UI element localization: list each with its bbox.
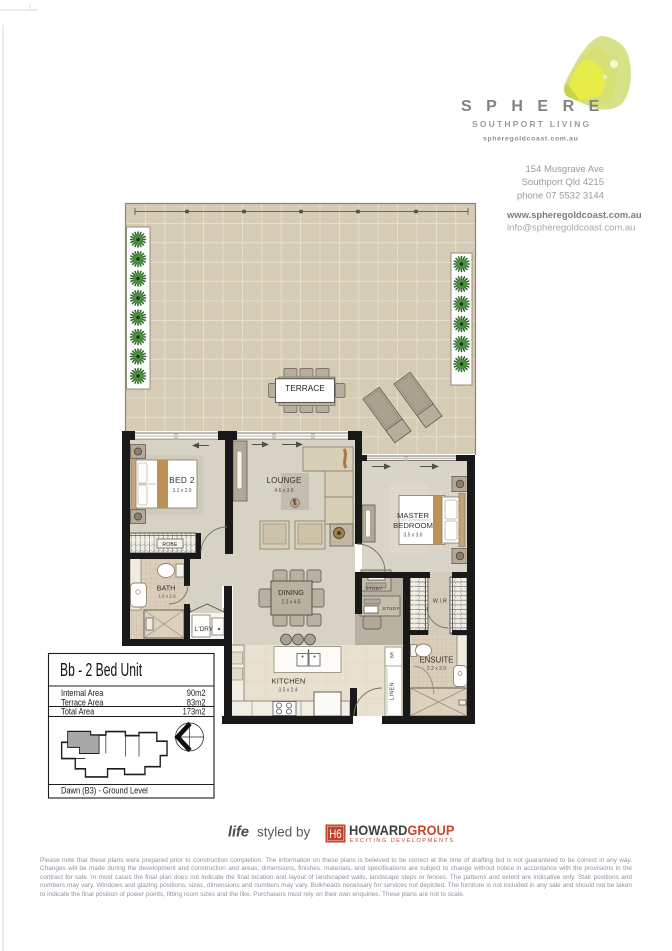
svg-text:ROBE: ROBE: [162, 542, 178, 548]
svg-text:TERRACE: TERRACE: [285, 383, 325, 393]
svg-text:LINEN: LINEN: [390, 682, 396, 700]
svg-text:BED 2: BED 2: [169, 476, 195, 485]
svg-text:W.I.R: W.I.R: [433, 599, 447, 605]
svg-text:2.3 x 4.5: 2.3 x 4.5: [281, 600, 300, 606]
svg-text:Southport Qld 4215: Southport Qld 4215: [522, 177, 604, 188]
svg-text:styled by: styled by: [257, 825, 311, 840]
svg-text:2.2 x 2.9: 2.2 x 2.9: [427, 666, 446, 672]
svg-text:BR: BR: [390, 652, 395, 658]
svg-text:EXCITING DEVELOPMENTS: EXCITING DEVELOPMENTS: [350, 838, 455, 844]
svg-text:MASTER: MASTER: [397, 511, 429, 520]
svg-text:life: life: [228, 825, 249, 841]
svg-text:SPHERE: SPHERE: [461, 98, 614, 115]
svg-text:STUDY: STUDY: [365, 586, 383, 592]
svg-text:BATH: BATH: [157, 584, 176, 593]
svg-text:ENSUITE: ENSUITE: [420, 656, 454, 665]
svg-text:HOWARDGROUP: HOWARDGROUP: [349, 823, 455, 838]
svg-text:STUDY: STUDY: [382, 606, 400, 612]
svg-text:www.spheregoldcoast.com.au: www.spheregoldcoast.com.au: [506, 209, 642, 220]
svg-text:Total Area: Total Area: [61, 706, 94, 717]
svg-text:154 Musgrave Ave: 154 Musgrave Ave: [525, 164, 604, 175]
svg-text:H6: H6: [329, 828, 342, 841]
svg-text:info@spheregoldcoast.com.au: info@spheregoldcoast.com.au: [507, 223, 635, 234]
svg-text:1.6 x 2.6: 1.6 x 2.6: [158, 594, 176, 599]
svg-text:Bb - 2 Bed Unit: Bb - 2 Bed Unit: [60, 661, 143, 681]
svg-text:phone 07 5532 3144: phone 07 5532 3144: [517, 190, 604, 201]
svg-text:3.5 x 2.4: 3.5 x 2.4: [278, 688, 297, 694]
svg-text:SOUTHPORT LIVING: SOUTHPORT LIVING: [472, 119, 591, 129]
svg-text:L'DRY: L'DRY: [195, 626, 214, 633]
svg-text:DINING: DINING: [278, 588, 304, 597]
svg-text:Dawn (B3) - Ground Level: Dawn (B3) - Ground Level: [61, 785, 148, 796]
svg-text:4.6 x 3.6: 4.6 x 3.6: [274, 488, 293, 494]
svg-text:BEDROOM: BEDROOM: [393, 521, 433, 530]
svg-text:KITCHEN: KITCHEN: [272, 677, 306, 686]
svg-text:3.1 x 2.9: 3.1 x 2.9: [172, 488, 191, 494]
svg-text:173m2: 173m2: [183, 706, 206, 717]
svg-text:spheregoldcoast.com.au: spheregoldcoast.com.au: [483, 136, 578, 143]
svg-text:3.5 x 3.6: 3.5 x 3.6: [403, 533, 422, 539]
svg-text:LOUNGE: LOUNGE: [267, 476, 302, 485]
